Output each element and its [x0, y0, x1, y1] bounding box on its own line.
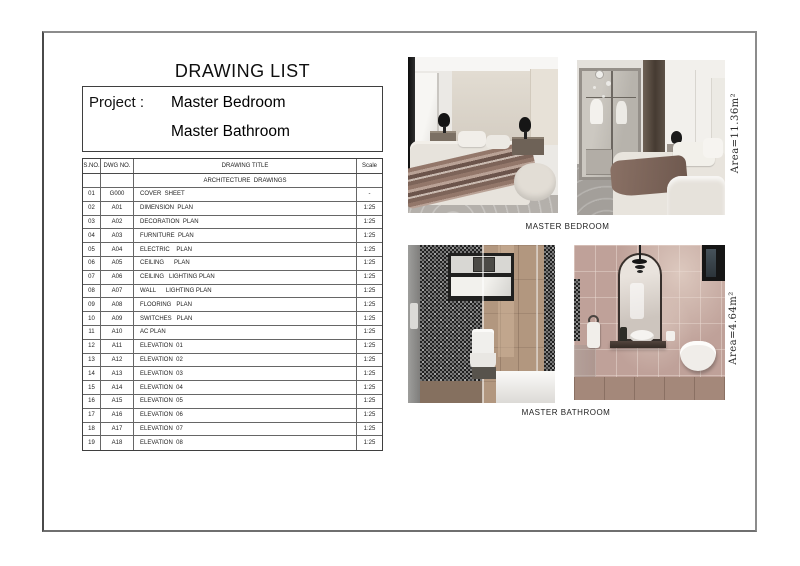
- cell-drawing-title: AC PLAN: [134, 326, 357, 339]
- cell-drawing-title: ELEVATION 01: [134, 340, 357, 353]
- window: [702, 245, 725, 281]
- cell-dwg-no: A03: [101, 229, 134, 242]
- cell-sno: 13: [83, 354, 101, 367]
- cell-drawing-title: CEILING LIGHTING PLAN: [134, 271, 357, 284]
- header-sno: S.NO.: [83, 159, 101, 173]
- cell-sno: 10: [83, 312, 101, 325]
- cell-dwg-no: A06: [101, 271, 134, 284]
- bedroom-photo-2: [577, 60, 725, 215]
- cell-sno: 07: [83, 271, 101, 284]
- cell-sno: 17: [83, 409, 101, 422]
- toilet: [680, 341, 716, 371]
- cell-scale: 1:25: [357, 423, 382, 436]
- cell-scale: 1:25: [357, 340, 382, 353]
- cell-dwg-no: A02: [101, 216, 134, 229]
- cell-drawing-title: ELEVATION 07: [134, 423, 357, 436]
- cell-drawing-title: FLOORING PLAN: [134, 298, 357, 311]
- table-row: 14A13ELEVATION 031:25: [83, 367, 382, 381]
- bathroom-caption: MASTER BATHROOM: [407, 408, 725, 417]
- cell-scale: 1:25: [357, 326, 382, 339]
- header-dwg-no: DWG NO.: [101, 159, 134, 173]
- window-pane: [706, 249, 716, 277]
- cell-dwg-no: A12: [101, 354, 134, 367]
- table-row: 12A11ELEVATION 011:25: [83, 340, 382, 354]
- dark-plinth: [472, 367, 496, 379]
- cell-scale: 1:25: [357, 381, 382, 394]
- hanging-rod: [586, 97, 636, 98]
- table-row: 13A12ELEVATION 021:25: [83, 354, 382, 368]
- section-empty-sno: [83, 174, 101, 187]
- table-row: 06A05CEILING PLAN1:25: [83, 257, 382, 271]
- hanging-clothes: [590, 99, 603, 124]
- cell-sno: 18: [83, 423, 101, 436]
- table-row: 04A03FURNITURE PLAN1:25: [83, 229, 382, 243]
- table-row: 15A14ELEVATION 041:25: [83, 381, 382, 395]
- project-name-line-2: Master Bathroom: [171, 123, 290, 141]
- mosaic-column: [544, 245, 555, 387]
- pendant-lamp: [635, 265, 645, 269]
- cell-scale: 1:25: [357, 395, 382, 408]
- cell-scale: 1:25: [357, 202, 382, 215]
- table-row: 10A09SWITCHES PLAN1:25: [83, 312, 382, 326]
- pillow: [486, 135, 510, 149]
- cell-dwg-no: A11: [101, 340, 134, 353]
- pouf: [514, 163, 556, 201]
- table-row: 09A08FLOORING PLAN1:25: [83, 298, 382, 312]
- cell-dwg-no: A10: [101, 326, 134, 339]
- cell-dwg-no: A16: [101, 409, 134, 422]
- cell-drawing-title: ELEVATION 02: [134, 354, 357, 367]
- table-row: 16A15ELEVATION 051:25: [83, 395, 382, 409]
- window: [448, 253, 514, 301]
- hanging-clothes: [616, 101, 627, 124]
- cell-sno: 01: [83, 188, 101, 201]
- cell-dwg-no: G000: [101, 188, 134, 201]
- cell-dwg-no: A15: [101, 395, 134, 408]
- towel: [587, 322, 600, 348]
- nightstand-right: [512, 137, 544, 155]
- cell-sno: 04: [83, 229, 101, 242]
- project-name-line-1: Master Bedroom: [171, 94, 286, 112]
- cell-drawing-title: ELEVATION 05: [134, 395, 357, 408]
- drawing-sheet: DRAWING LIST Project : Master Bedroom Ma…: [0, 0, 800, 566]
- cell-sno: 15: [83, 381, 101, 394]
- drawing-table-rows: 01G000COVER SHEET-02A01DIMENSION PLAN1:2…: [83, 188, 382, 450]
- brown-curtain: [643, 60, 665, 158]
- cabinet-edge: [695, 70, 696, 150]
- bathroom-photo-2: [574, 245, 725, 400]
- bathroom-area-note: Area=4.64m²: [728, 278, 742, 378]
- cell-sno: 08: [83, 285, 101, 298]
- table-row: 11A10AC PLAN1:25: [83, 326, 382, 340]
- section-empty-dwg: [101, 174, 134, 187]
- section-title: ARCHITECTURE DRAWINGS: [134, 174, 357, 187]
- cell-scale: 1:25: [357, 409, 382, 422]
- cell-dwg-no: A05: [101, 257, 134, 270]
- towel: [410, 303, 418, 329]
- cell-drawing-title: DECORATION PLAN: [134, 216, 357, 229]
- cell-scale: 1:25: [357, 436, 382, 450]
- cell-drawing-title: ELEVATION 08: [134, 436, 357, 450]
- cell-dwg-no: A17: [101, 423, 134, 436]
- project-box: Project : Master Bedroom Master Bathroom: [82, 86, 383, 152]
- lamp-base-left: [443, 126, 446, 133]
- cell-drawing-title: SWITCHES PLAN: [134, 312, 357, 325]
- cell-dwg-no: A01: [101, 202, 134, 215]
- table-row: 18A17ELEVATION 071:25: [83, 423, 382, 437]
- wardrobe-shelves: [586, 149, 612, 175]
- toilet-tank: [472, 329, 494, 353]
- vanity-counter: [610, 341, 666, 348]
- cell-scale: 1:25: [357, 367, 382, 380]
- mosaic-strip: [574, 279, 580, 341]
- table-row: 19A18ELEVATION 081:25: [83, 436, 382, 450]
- cell-scale: 1:25: [357, 312, 382, 325]
- cell-drawing-title: COVER SHEET: [134, 188, 357, 201]
- cell-sno: 09: [83, 298, 101, 311]
- table-header-row: S.NO. DWG NO. DRAWING TITLE Scale: [83, 159, 382, 174]
- table-row: 05A04ELECTRIC PLAN1:25: [83, 243, 382, 257]
- drawing-list-table: S.NO. DWG NO. DRAWING TITLE Scale ARCHIT…: [82, 158, 383, 451]
- cell-sno: 05: [83, 243, 101, 256]
- table-row: 03A02DECORATION PLAN1:25: [83, 216, 382, 230]
- table-row: 07A06CEILING LIGHTING PLAN1:25: [83, 271, 382, 285]
- shelf-niche: [530, 69, 558, 145]
- header-scale: Scale: [357, 159, 382, 173]
- project-label: Project :: [89, 94, 144, 111]
- table-section-row: ARCHITECTURE DRAWINGS: [83, 174, 382, 188]
- floor: [420, 381, 482, 403]
- cell-drawing-title: ELECTRIC PLAN: [134, 243, 357, 256]
- cell-dwg-no: A04: [101, 243, 134, 256]
- table-lamp-right: [519, 117, 531, 132]
- bubble-pendant-light: [595, 70, 604, 79]
- cell-drawing-title: ELEVATION 04: [134, 381, 357, 394]
- window-pane-bottom: [451, 277, 511, 296]
- cell-dwg-no: A08: [101, 298, 134, 311]
- table-row: 08A07WALL LIGHTING PLAN1:25: [83, 285, 382, 299]
- cell-scale: -: [357, 188, 382, 201]
- cell-dwg-no: A07: [101, 285, 134, 298]
- table-row: 02A01DIMENSION PLAN1:25: [83, 202, 382, 216]
- cell-dwg-no: A14: [101, 381, 134, 394]
- cell-dwg-no: A13: [101, 367, 134, 380]
- cell-scale: 1:25: [357, 271, 382, 284]
- white-ledge: [496, 371, 555, 403]
- cell-scale: 1:25: [357, 285, 382, 298]
- cell-sno: 06: [83, 257, 101, 270]
- section-empty-scale: [357, 174, 382, 187]
- cell-scale: 1:25: [357, 229, 382, 242]
- cell-scale: 1:25: [357, 298, 382, 311]
- cell-sno: 19: [83, 436, 101, 450]
- cell-drawing-title: ELEVATION 03: [134, 367, 357, 380]
- header-drawing-title: DRAWING TITLE: [134, 159, 357, 173]
- pendant-lamp: [632, 259, 647, 264]
- cell-drawing-title: ELEVATION 06: [134, 409, 357, 422]
- mirror-reflection: [630, 283, 644, 319]
- pendant-stem: [639, 245, 641, 260]
- cell-sno: 02: [83, 202, 101, 215]
- bathroom-photo-1: [408, 245, 555, 403]
- cell-drawing-title: DIMENSION PLAN: [134, 202, 357, 215]
- cell-drawing-title: FURNITURE PLAN: [134, 229, 357, 242]
- pillow: [703, 138, 723, 158]
- decor-bottle: [620, 327, 627, 341]
- paper-roll: [666, 331, 675, 341]
- cell-dwg-no: A09: [101, 312, 134, 325]
- pendant-lamp: [637, 270, 643, 273]
- window-pane-top: [451, 256, 511, 273]
- lamp-base-right: [524, 131, 527, 139]
- cell-scale: 1:25: [357, 257, 382, 270]
- footboard-bench: [667, 176, 725, 215]
- bedroom-photo-1: [408, 57, 558, 213]
- bedroom-area-note: Area=11.36m²: [730, 83, 744, 183]
- vent-grille: [473, 257, 495, 272]
- cell-dwg-no: A18: [101, 436, 134, 450]
- glass-partition-edge: [482, 245, 484, 403]
- pillow: [458, 131, 486, 147]
- floor: [574, 377, 725, 400]
- cell-scale: 1:25: [357, 354, 382, 367]
- cell-sno: 14: [83, 367, 101, 380]
- cell-sno: 12: [83, 340, 101, 353]
- table-row: 17A16ELEVATION 061:25: [83, 409, 382, 423]
- bedroom-caption: MASTER BEDROOM: [408, 222, 727, 231]
- cell-sno: 16: [83, 395, 101, 408]
- cell-sno: 03: [83, 216, 101, 229]
- cell-scale: 1:25: [357, 243, 382, 256]
- cell-drawing-title: WALL LIGHTING PLAN: [134, 285, 357, 298]
- cell-scale: 1:25: [357, 216, 382, 229]
- table-row: 01G000COVER SHEET-: [83, 188, 382, 202]
- table-lamp-left: [438, 113, 450, 127]
- page-title: DRAWING LIST: [92, 61, 393, 82]
- cell-sno: 11: [83, 326, 101, 339]
- cell-drawing-title: CEILING PLAN: [134, 257, 357, 270]
